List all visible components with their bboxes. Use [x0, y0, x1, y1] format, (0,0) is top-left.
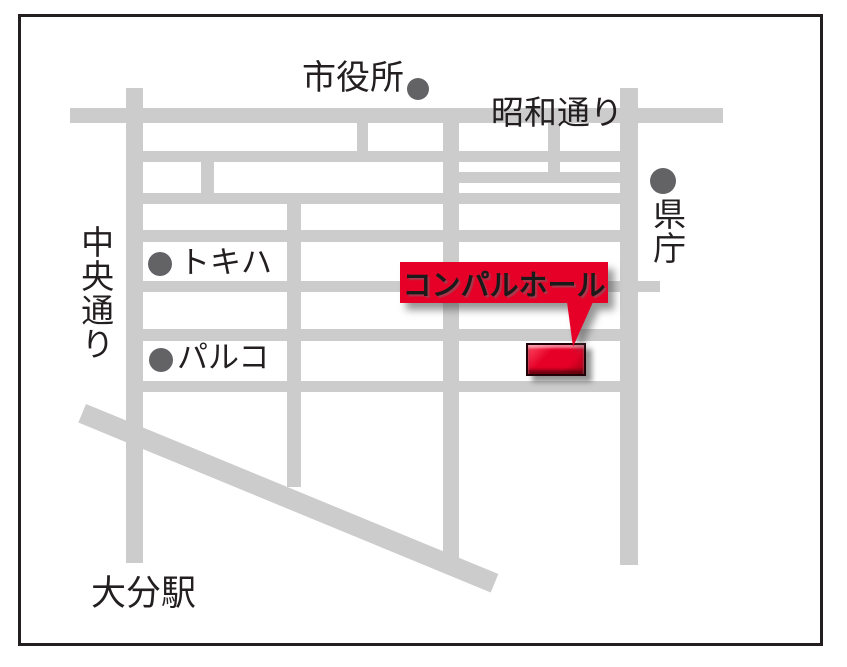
parco-label: パルコ — [177, 342, 269, 375]
tokiwa-dot — [148, 252, 172, 276]
destination-marker — [526, 343, 586, 376]
oita-station-label: 大分駅 — [91, 576, 196, 613]
city-hall-label: 市役所 — [302, 61, 404, 97]
showa-dori-label: 昭和通り — [491, 96, 623, 131]
prefectural-office-label: 県庁 — [649, 197, 684, 265]
prefectural-office-dot — [650, 168, 676, 194]
road-v-2 — [287, 197, 301, 487]
parco-dot — [149, 348, 173, 372]
road-h-d — [127, 281, 660, 292]
chuo-dori-label: 中央通り — [77, 225, 112, 361]
access-map: 市役所 昭和通り 県庁 中央通り トキハ パルコ 大分駅 コンパルホール — [0, 0, 847, 667]
tokiwa-label: トキハ — [179, 247, 272, 280]
road-v-3 — [443, 108, 459, 561]
road-h-a2 — [445, 172, 636, 183]
road-chuo-dori — [126, 88, 143, 563]
city-hall-dot — [407, 78, 429, 100]
road-connector-2 — [357, 112, 368, 162]
road-h-c — [127, 230, 636, 242]
road-h-f — [127, 381, 636, 392]
road-connector-1 — [201, 151, 214, 204]
road-v-4 — [620, 88, 638, 565]
